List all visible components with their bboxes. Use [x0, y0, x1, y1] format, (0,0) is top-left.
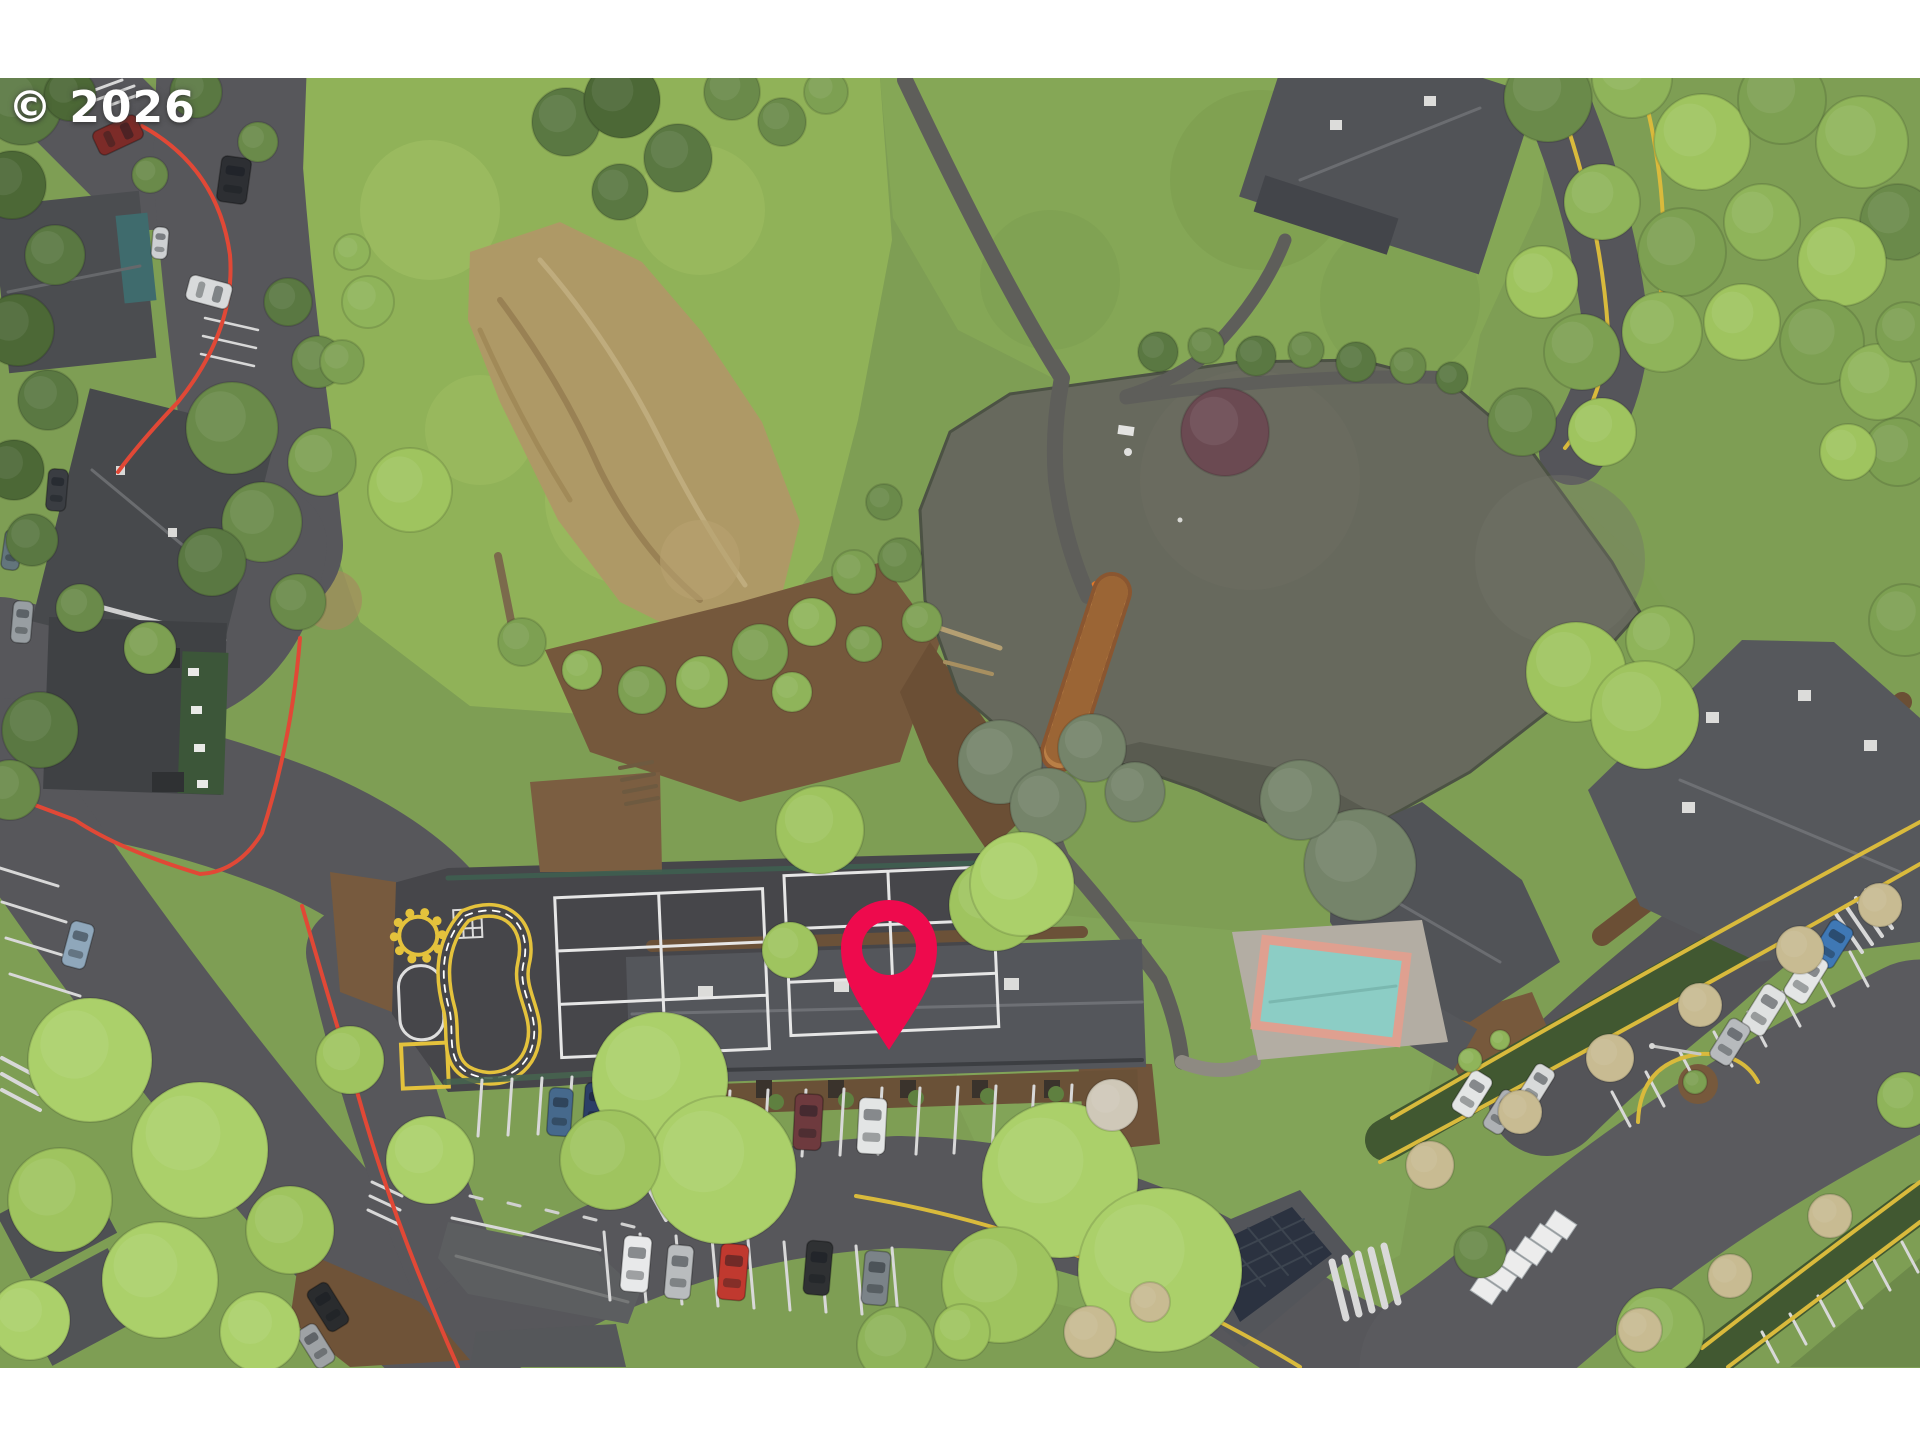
tree-highlight — [18, 1158, 75, 1215]
scene-shape — [1475, 475, 1645, 645]
tree-highlight — [1664, 104, 1717, 157]
aerial-photo — [0, 78, 1920, 1368]
car-body — [861, 1250, 892, 1306]
tree-highlight — [1630, 300, 1674, 344]
tree-highlight — [1069, 1311, 1098, 1340]
tree-highlight — [114, 1234, 178, 1298]
tree-highlight — [1712, 292, 1754, 334]
car — [151, 226, 170, 259]
tree-highlight — [681, 661, 710, 690]
scene-shape — [1649, 1043, 1655, 1049]
tree-highlight — [242, 126, 264, 148]
tree-highlight — [836, 554, 860, 578]
tree-highlight — [395, 1125, 443, 1173]
tree-highlight — [1647, 217, 1695, 265]
tree-highlight — [570, 1120, 625, 1175]
tree-highlight — [1826, 430, 1857, 461]
tree-highlight — [966, 728, 1012, 774]
tree-highlight — [882, 542, 906, 566]
tree-highlight — [566, 654, 588, 676]
tree-highlight — [850, 630, 870, 650]
tree-highlight — [1712, 1258, 1736, 1282]
car-body — [717, 1243, 750, 1301]
car — [620, 1235, 653, 1293]
tree-highlight — [793, 603, 819, 629]
tree-highlight — [195, 391, 246, 442]
tree-highlight — [1622, 1312, 1646, 1336]
car-body — [45, 468, 69, 512]
car-rear-window — [626, 1270, 645, 1280]
scene-shape — [191, 706, 202, 714]
scene-shape — [1424, 96, 1436, 106]
tree-highlight — [1065, 721, 1102, 758]
tree-highlight — [1268, 768, 1312, 812]
tree-highlight — [1682, 987, 1706, 1011]
tree-highlight — [269, 283, 295, 309]
swimming-pool — [1255, 940, 1406, 1043]
tree-highlight — [276, 580, 307, 611]
tree-highlight — [998, 1118, 1084, 1204]
tree-highlight — [347, 281, 376, 310]
car-windshield — [799, 1105, 817, 1117]
car-rear-window — [866, 1284, 883, 1294]
tree-highlight — [954, 1239, 1018, 1303]
chimney — [834, 980, 849, 992]
tree-highlight — [1513, 253, 1553, 293]
tree-highlight — [324, 344, 348, 368]
car — [861, 1250, 892, 1306]
duck — [1178, 518, 1183, 523]
tree-highlight — [1142, 336, 1164, 358]
car-body — [620, 1235, 653, 1293]
scene-shape — [1864, 740, 1877, 751]
tree-highlight — [865, 1315, 907, 1357]
tree-highlight — [1460, 1050, 1473, 1063]
tree-highlight — [1781, 931, 1807, 957]
tree-highlight — [663, 1111, 744, 1192]
tree-highlight — [10, 700, 52, 742]
tree-highlight — [1134, 1286, 1156, 1308]
car-windshield — [863, 1109, 881, 1121]
tree-highlight — [785, 795, 833, 843]
car-windshield — [553, 1097, 569, 1108]
car — [216, 155, 252, 205]
scene-shape — [1798, 690, 1811, 701]
scene-shape — [197, 780, 208, 788]
tree-highlight — [1394, 352, 1414, 372]
tree-highlight — [1190, 397, 1238, 445]
tree-highlight — [31, 231, 64, 264]
tree-highlight — [1411, 1146, 1437, 1172]
pool-walk — [1182, 1062, 1254, 1070]
page-background: © 2026 — [0, 0, 1920, 1440]
scene-shape — [660, 520, 740, 600]
scene-shape — [168, 528, 177, 537]
tree-highlight — [1788, 308, 1834, 354]
car-rear-window — [50, 494, 63, 502]
tree-highlight — [1876, 591, 1916, 631]
car-windshield — [671, 1255, 689, 1267]
car — [717, 1243, 750, 1301]
tree-highlight — [906, 606, 928, 628]
car — [10, 600, 34, 644]
car — [857, 1097, 888, 1154]
tree-highlight — [146, 1096, 221, 1171]
car — [45, 468, 69, 512]
tree-highlight — [1633, 613, 1670, 650]
tree-highlight — [295, 435, 332, 472]
tree-highlight — [1492, 1032, 1503, 1043]
car-rear-window — [808, 1274, 825, 1284]
tree-highlight — [763, 103, 789, 129]
car-rear-window — [551, 1117, 567, 1126]
tree-highlight — [1807, 227, 1855, 275]
tree-highlight — [940, 1310, 971, 1341]
tree-highlight — [623, 671, 649, 697]
tree-highlight — [230, 490, 274, 534]
car-body — [664, 1244, 695, 1300]
scene-shape — [756, 1080, 772, 1098]
tree-highlight — [1536, 632, 1591, 687]
tree-highlight — [651, 131, 688, 168]
tree-highlight — [338, 238, 358, 258]
tree-highlight — [1572, 172, 1614, 214]
scene-shape — [188, 668, 199, 676]
tree-highlight — [1812, 1198, 1836, 1222]
tree-highlight — [0, 1288, 42, 1332]
scene-shape — [152, 772, 184, 792]
tree-highlight — [1111, 768, 1144, 801]
person — [1124, 448, 1132, 456]
tree-highlight — [376, 456, 422, 502]
car — [803, 1240, 834, 1296]
tree-highlight — [228, 1300, 272, 1344]
tree-highlight — [606, 1026, 681, 1101]
car — [664, 1244, 695, 1300]
car — [793, 1093, 824, 1150]
tree-highlight — [255, 1195, 303, 1243]
car-body — [857, 1097, 888, 1154]
car-windshield — [628, 1246, 647, 1259]
car-body — [793, 1093, 824, 1150]
car-rear-window — [798, 1128, 816, 1138]
tree-highlight — [24, 376, 57, 409]
car-windshield — [51, 477, 64, 486]
aerial-photo-svg — [0, 78, 1920, 1368]
tree-highlight — [1552, 322, 1594, 364]
tree-highlight — [503, 623, 529, 649]
tree-highlight — [1192, 332, 1212, 352]
tree-highlight — [1018, 776, 1060, 818]
car-body — [151, 226, 170, 259]
tree-highlight — [323, 1033, 360, 1070]
tree-highlight — [1848, 352, 1890, 394]
tree-highlight — [1091, 1084, 1120, 1113]
tree-highlight — [738, 630, 769, 661]
tree-highlight — [598, 170, 629, 201]
tree-highlight — [1825, 105, 1876, 156]
tree-highlight — [1439, 365, 1457, 383]
car-windshield — [16, 609, 29, 618]
scene-shape — [838, 1092, 854, 1108]
scene-shape — [194, 744, 205, 752]
tree-highlight — [1575, 405, 1612, 442]
tree-highlight — [1862, 887, 1886, 911]
tree-highlight — [136, 161, 156, 181]
tree-highlight — [40, 1010, 108, 1078]
tree-highlight — [185, 535, 222, 572]
tree-highlight — [1340, 346, 1362, 368]
tree-highlight — [1094, 1204, 1184, 1294]
scene-shape — [1048, 1086, 1064, 1102]
car-windshield — [725, 1254, 744, 1267]
car-rear-window — [862, 1132, 880, 1142]
copyright-watermark: © 2026 — [8, 82, 196, 133]
car-body — [803, 1240, 834, 1296]
tree-highlight — [1591, 1039, 1617, 1065]
tree-highlight — [1883, 1078, 1914, 1109]
tree-highlight — [1602, 672, 1661, 731]
car-body — [216, 155, 252, 205]
car-windshield — [868, 1261, 886, 1273]
tree-highlight — [61, 589, 87, 615]
chimney — [698, 986, 713, 998]
tree-highlight — [1495, 395, 1532, 432]
tree-highlight — [1240, 340, 1262, 362]
tree-highlight — [980, 842, 1037, 899]
tree-highlight — [870, 488, 890, 508]
chimney — [1004, 978, 1019, 990]
car-rear-window — [15, 626, 28, 634]
scene-shape — [1706, 712, 1719, 723]
green-fascia — [178, 651, 229, 795]
tree-highlight — [11, 519, 40, 548]
tree-highlight — [1685, 1072, 1698, 1085]
car-body — [10, 600, 34, 644]
scene-shape — [768, 1094, 784, 1110]
tree-highlight — [1732, 192, 1774, 234]
tree-highlight — [768, 928, 799, 959]
tree-highlight — [129, 627, 158, 656]
tree-highlight — [539, 95, 576, 132]
tree-highlight — [1502, 1094, 1526, 1118]
tree-highlight — [1868, 192, 1910, 234]
tree-highlight — [1459, 1231, 1488, 1260]
scene-shape — [1330, 120, 1342, 130]
tree-highlight — [1882, 308, 1915, 341]
scene-shape — [1682, 802, 1695, 813]
car-windshield — [810, 1251, 828, 1263]
car-rear-window — [669, 1278, 686, 1288]
tree-highlight — [776, 676, 798, 698]
tree-highlight — [1292, 336, 1312, 356]
scene-shape — [908, 1090, 924, 1106]
car-rear-window — [723, 1278, 742, 1288]
